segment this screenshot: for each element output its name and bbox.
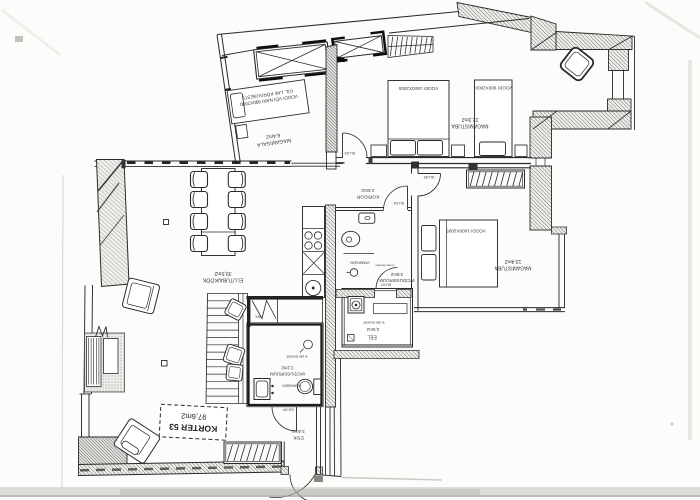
svg-text:VOODI 1600X2000: VOODI 1600X2000 <box>398 86 438 91</box>
svg-text:WC/DUSSIRUUM: WC/DUSSIRUUM <box>270 371 305 376</box>
svg-text:KORIDOR: KORIDOR <box>356 194 379 200</box>
svg-text:SU-05: SU-05 <box>424 175 435 179</box>
svg-text:22,3m2: 22,3m2 <box>461 116 478 122</box>
svg-text:WC/DUSSIRUUM: WC/DUSSIRUUM <box>379 278 414 283</box>
svg-text:3,1m2: 3,1m2 <box>281 366 294 371</box>
svg-text:SU-04: SU-04 <box>394 201 405 205</box>
svg-text:13,4m2: 13,4m2 <box>504 258 521 264</box>
svg-text:VOODI 1600X2005: VOODI 1600X2005 <box>446 228 486 233</box>
svg-text:EEL: EEL <box>367 333 377 339</box>
svg-text:SU-03: SU-03 <box>345 151 356 155</box>
svg-text:2,5m2: 2,5m2 <box>366 327 379 332</box>
svg-text:97,6m2: 97,6m2 <box>181 411 207 421</box>
svg-text:3,4m2: 3,4m2 <box>292 429 305 434</box>
svg-text:vl san.tsoonist: vl san.tsoonist <box>363 320 384 324</box>
svg-text:ELUTUBA/KÖÖK: ELUTUBA/KÖÖK <box>202 277 243 284</box>
svg-text:WX: WX <box>255 314 261 318</box>
svg-text:VANNISEIN: VANNISEIN <box>350 261 370 265</box>
svg-text:ESIK: ESIK <box>292 435 303 440</box>
svg-text:2,5m2: 2,5m2 <box>361 187 375 193</box>
svg-text:MAGAMISTUBA: MAGAMISTUBA <box>494 265 532 271</box>
svg-text:VOODI 900X2000: VOODI 900X2000 <box>475 85 512 90</box>
svg-text:vl san.tsoonist: vl san.tsoonist <box>375 263 394 267</box>
svg-text:39,5m2: 39,5m2 <box>214 270 231 276</box>
svg-text:3,9m2: 3,9m2 <box>390 272 403 277</box>
svg-text:vl san.tsoonist: vl san.tsoonist <box>286 354 307 358</box>
svg-text:SU-04: SU-04 <box>283 408 294 412</box>
svg-text:MAGAMISTUBA: MAGAMISTUBA <box>451 123 489 129</box>
svg-text:VANNISEIN: VANNISEIN <box>282 383 301 387</box>
